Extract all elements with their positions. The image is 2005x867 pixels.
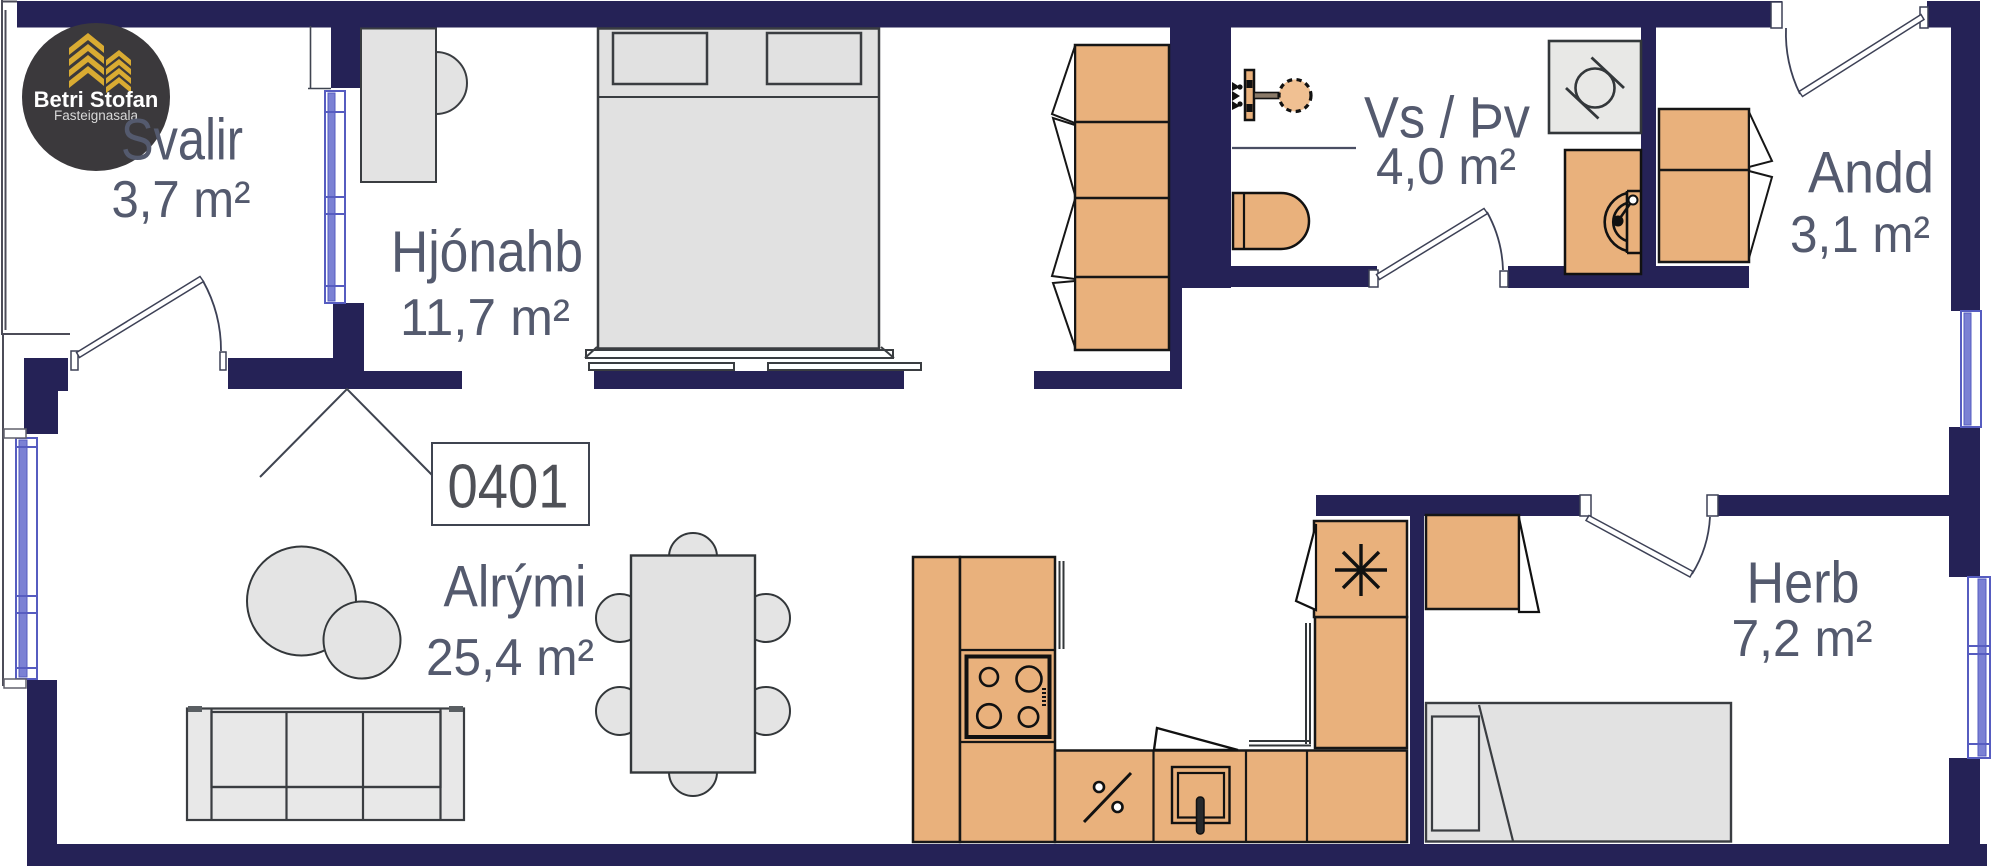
svg-text:Svalir: Svalir (121, 108, 243, 173)
svg-text:4,0 m²: 4,0 m² (1376, 138, 1516, 196)
svg-text:25,4 m²: 25,4 m² (426, 629, 594, 687)
svg-text:11,7 m²: 11,7 m² (400, 289, 570, 347)
svg-text:3,1 m²: 3,1 m² (1790, 206, 1930, 264)
svg-text:0401: 0401 (448, 453, 569, 522)
svg-text:7,2 m²: 7,2 m² (1732, 610, 1873, 668)
svg-text:Andd: Andd (1808, 141, 1934, 206)
svg-text:Herb: Herb (1747, 551, 1860, 616)
svg-text:3,7 m²: 3,7 m² (112, 171, 251, 229)
svg-text:Alrými: Alrými (444, 555, 587, 620)
svg-text:Hjónahb: Hjónahb (391, 220, 583, 285)
